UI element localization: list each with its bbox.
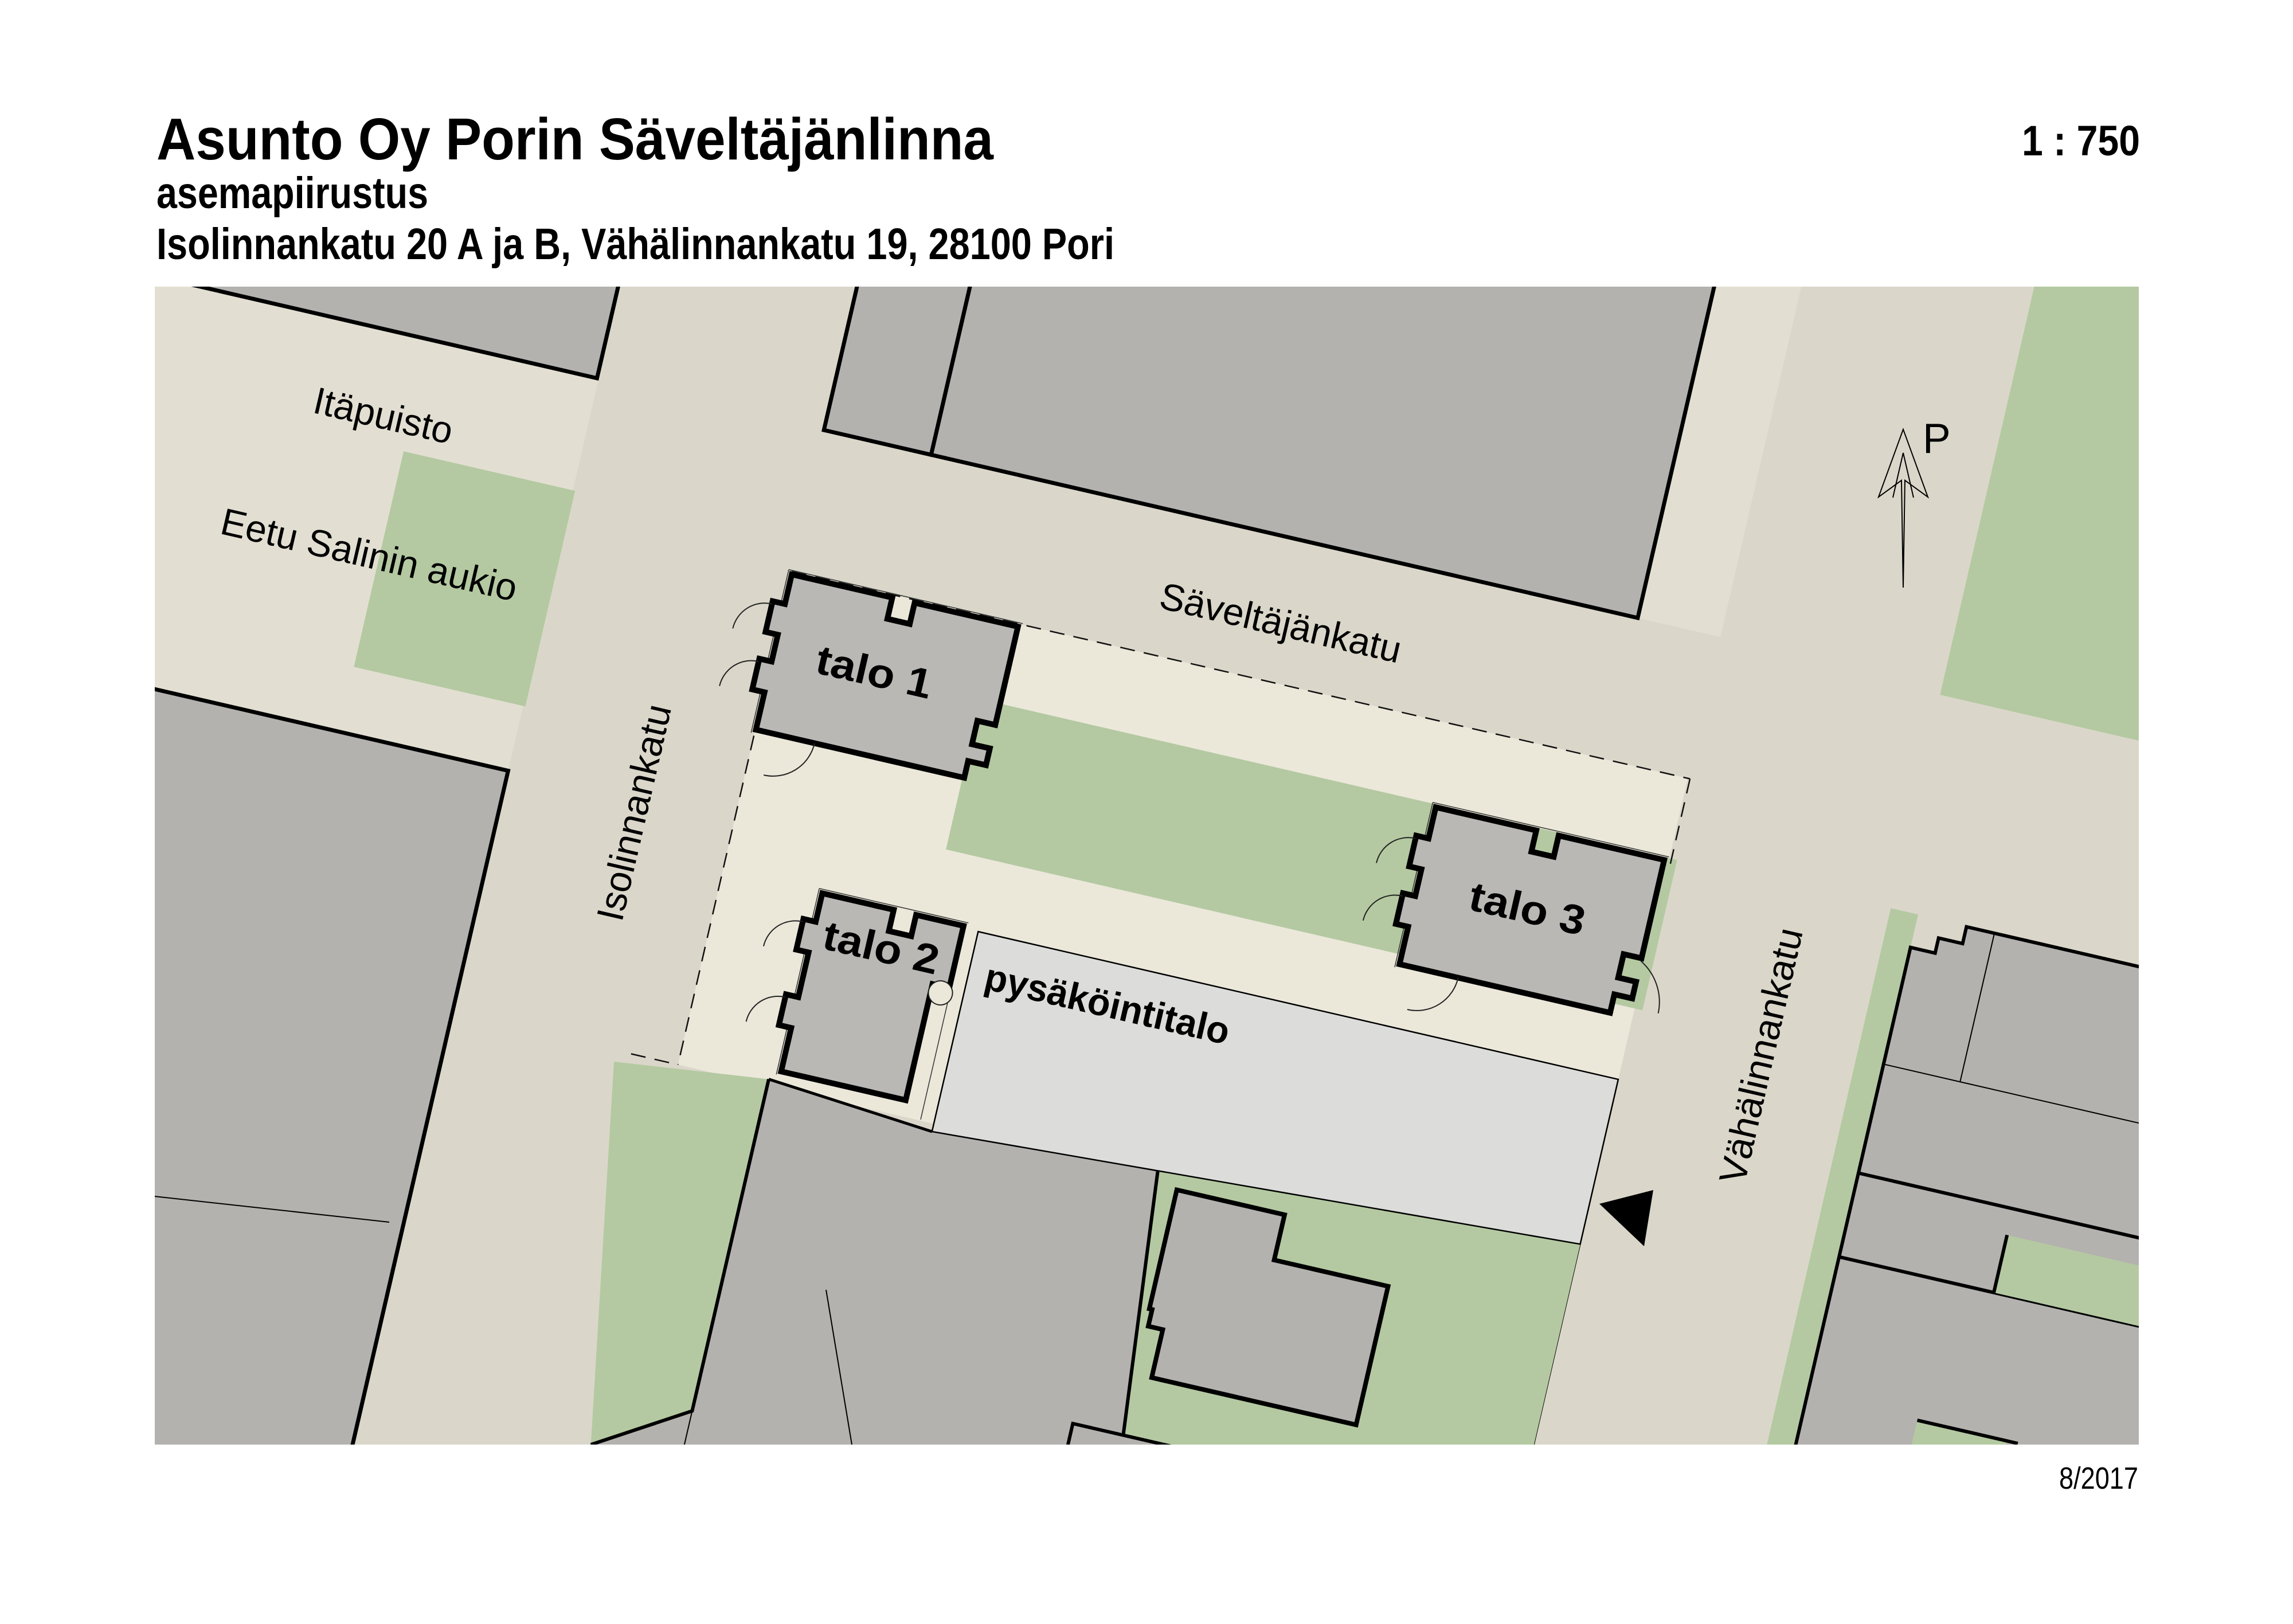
svg-text:1 : 750: 1 : 750 — [2022, 117, 2140, 165]
svg-text:asemapiirustus: asemapiirustus — [156, 169, 428, 218]
svg-text:P: P — [1923, 416, 1951, 462]
svg-text:Asunto Oy Porin Säveltäjänlinn: Asunto Oy Porin Säveltäjänlinna — [156, 106, 994, 172]
svg-text:Isolinnankatu 20 A ja B, Vähäl: Isolinnankatu 20 A ja B, Vähälinnankatu … — [156, 220, 1114, 269]
svg-text:8/2017: 8/2017 — [2059, 1461, 2138, 1496]
